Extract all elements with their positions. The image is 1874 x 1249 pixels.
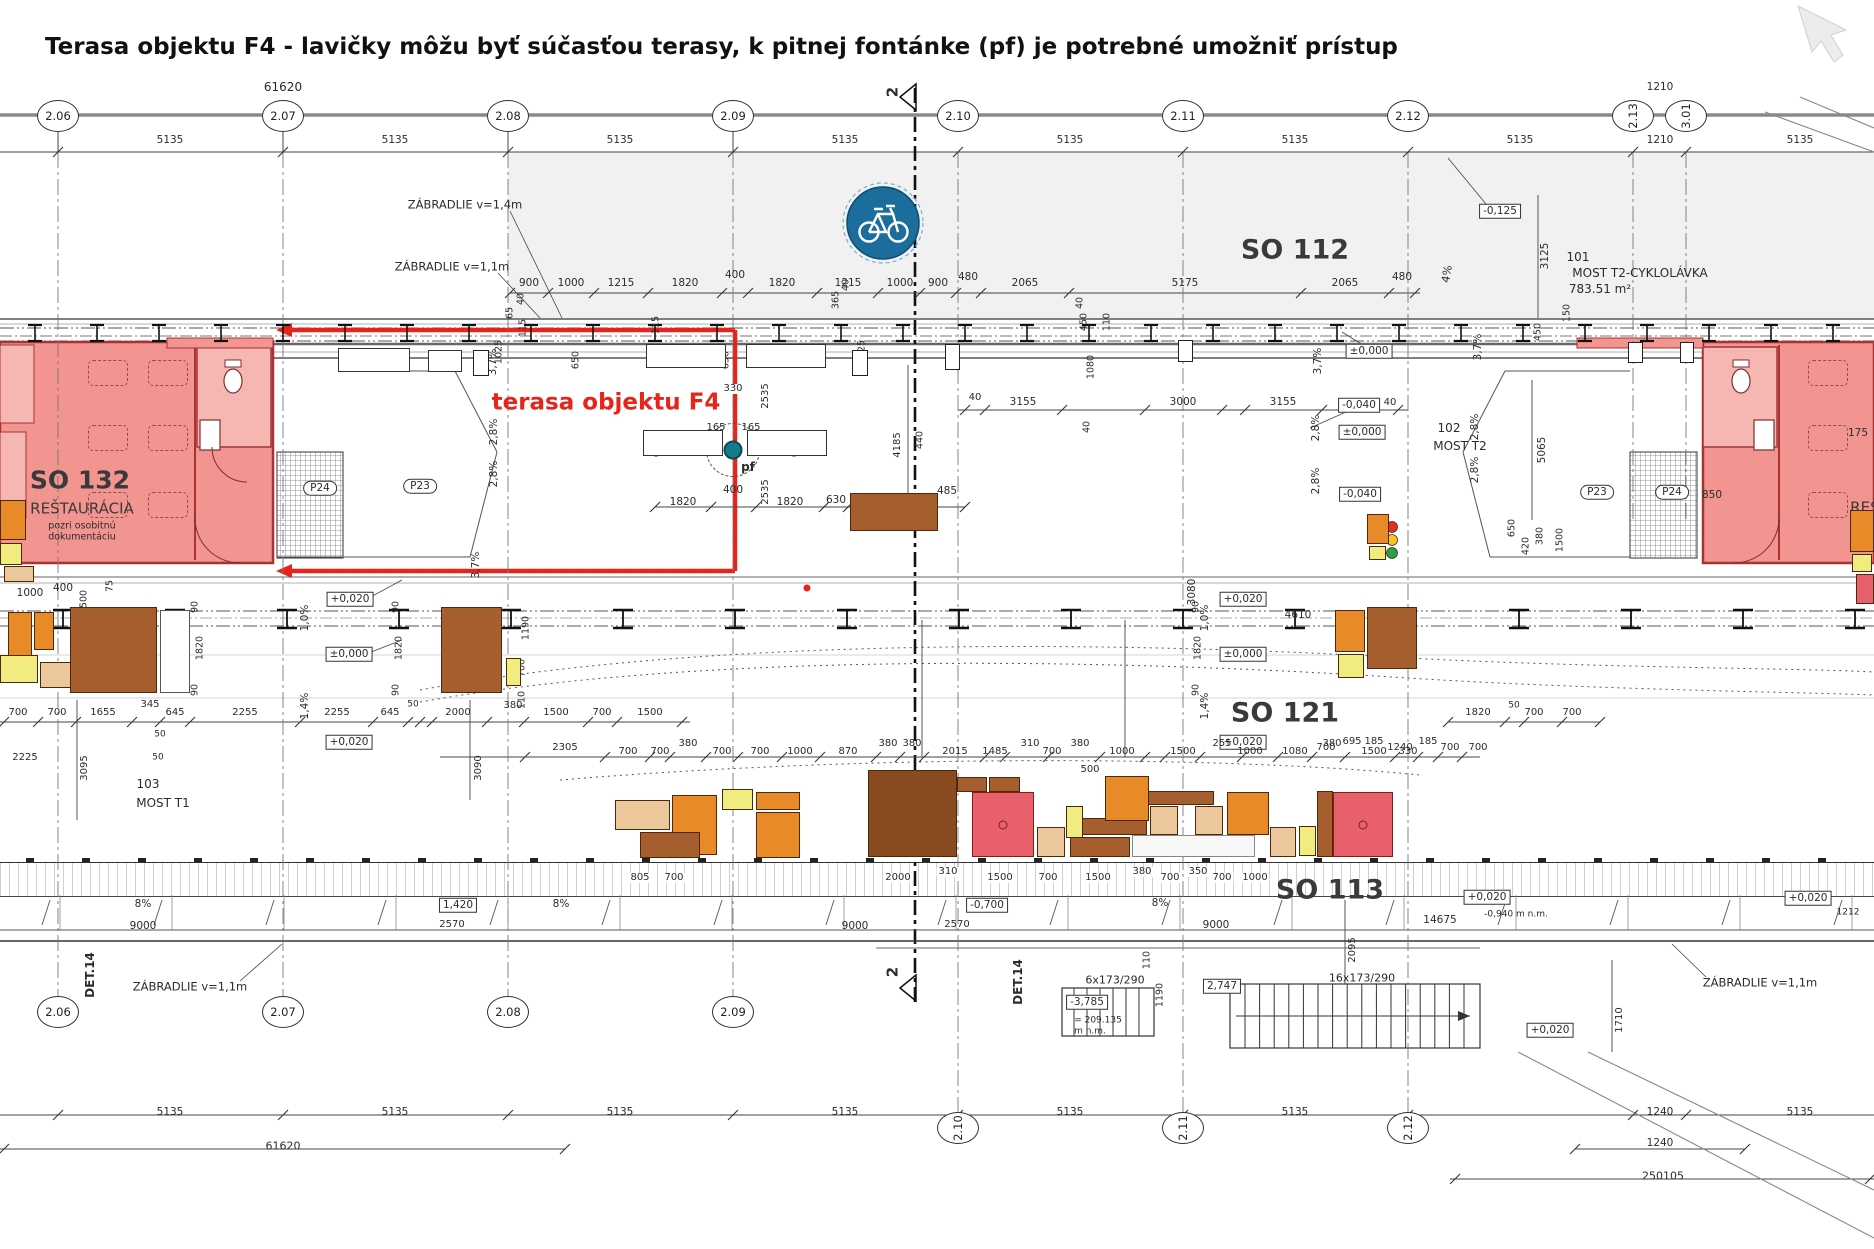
dim-label: 1210 [1647, 82, 1674, 93]
dim-label: 185 [1418, 737, 1437, 747]
dim-label: 40 [516, 293, 526, 305]
dim-label: 75 [105, 580, 115, 592]
grid-axis-label: 2.08 [495, 109, 521, 123]
dim-label: 1500 [1361, 747, 1386, 757]
dim-label: 700 [1562, 708, 1581, 718]
dim-label: 1710 [1615, 1007, 1625, 1032]
dim-label: 700 [8, 708, 27, 718]
dim-label: 5135 [832, 135, 859, 146]
grid-axis-bubble: 2.09 [712, 996, 754, 1028]
furniture-box [1850, 510, 1874, 552]
dim-label: 9000 [842, 921, 869, 932]
dim-label: 2305 [552, 743, 577, 753]
grid-axis-label: 2.09 [720, 1005, 746, 1019]
slope-arrow [1722, 900, 1730, 925]
grid-axis-label: 2.08 [495, 1005, 521, 1019]
dim-label: 400 [723, 485, 743, 496]
table-outline [1808, 360, 1848, 386]
grid-axis-bubble: 2.06 [37, 996, 79, 1028]
dim-label: 150 [1562, 304, 1572, 322]
dim-label: -0,940 m n.m. [1484, 911, 1548, 920]
grid-axis-label: 2.06 [45, 1005, 71, 1019]
dim-label: 3155 [1010, 397, 1037, 408]
slope-arrow [42, 900, 50, 925]
dim-label: 1820 [777, 497, 804, 508]
dim-label: 8% [135, 899, 152, 910]
dim-label: -0,040 [1338, 398, 1380, 413]
dim-label: 5135 [157, 1107, 184, 1118]
dim-label: 3,7% [1313, 348, 1324, 375]
grid-axis-label: 2.12 [1395, 109, 1421, 123]
dim-label: 1820 [394, 636, 404, 660]
dim-label: 380 [1535, 527, 1545, 545]
dim-label: 700 [712, 747, 731, 757]
furniture-box [441, 607, 502, 693]
dim-label: ZÁBRADLIE v=1,1m [1703, 977, 1818, 989]
dim-label: 650 [571, 351, 581, 369]
dim-label: 1000 [17, 588, 44, 599]
dim-label: 700 [750, 747, 769, 757]
furniture-box [1333, 792, 1393, 857]
slope-arrow [378, 900, 386, 925]
grid-axis-label: 2.11 [1176, 1115, 1190, 1141]
dim-label: 870 [838, 747, 857, 757]
grid-axis-bubble: 2.08 [487, 996, 529, 1028]
grid-axis-bubble: 2.11 [1162, 100, 1204, 132]
dim-label: 645 [380, 708, 399, 718]
dim-label: 440 [915, 431, 925, 449]
dim-label: 1000 [1240, 873, 1269, 883]
box-center-mark [1359, 820, 1368, 829]
furniture-box [852, 350, 868, 376]
dim-label: 61620 [264, 81, 302, 93]
dim-label: 40 [969, 393, 982, 403]
furniture-box [1227, 792, 1269, 835]
dim-label: 90 [1191, 601, 1201, 613]
dim-label: 5135 [832, 1107, 859, 1118]
dim-label: +0,020 [1464, 890, 1511, 905]
grid-axis-bubble: 2.13 [1612, 100, 1654, 132]
table-outline [1808, 425, 1848, 451]
dim-label: 40 [1075, 297, 1085, 309]
dim-label: 90 [190, 601, 200, 613]
lower-deck-rails [0, 577, 1874, 698]
dim-label: 2,8% [489, 461, 500, 488]
dim-label: 8% [553, 899, 570, 910]
table-outline [88, 360, 128, 386]
cad-plan-canvas: Terasa objektu F4 - lavičky môžu byť súč… [0, 0, 1874, 1249]
table-outline [88, 492, 128, 518]
slope-arrow [1386, 900, 1394, 925]
grid-axis-bubble: 2.12 [1387, 1112, 1429, 1144]
grid-axis-bubble: 2.07 [262, 996, 304, 1028]
dim-label: 5135 [382, 1107, 409, 1118]
grid-axis-label: 2.11 [1170, 109, 1196, 123]
dim-label: 1240 [1647, 1107, 1674, 1118]
dim-label: +0,020 [1220, 592, 1267, 607]
furniture-box [1178, 340, 1193, 362]
hatch-pad-left [277, 452, 343, 558]
furniture-box [1338, 654, 1364, 678]
dim-label: pozri osobitnú [48, 521, 115, 531]
dim-label: 1240 [1647, 1138, 1674, 1149]
furniture-box [957, 777, 987, 792]
furniture-box [1680, 342, 1694, 363]
dim-label: 2225 [12, 753, 37, 763]
dim-label: 1485 [982, 747, 1007, 757]
dim-label: SO 113 [1276, 877, 1384, 904]
dim-label: 1190 [1155, 983, 1165, 1007]
dim-label: 1,0% [300, 605, 311, 632]
dim-label: 5135 [607, 135, 634, 146]
dim-label: 700 [592, 708, 611, 718]
dim-label: 1500 [1555, 528, 1565, 552]
dim-label: ZÁBRADLIE v=1,1m [133, 981, 248, 993]
dim-label: 1820 [195, 636, 205, 660]
table-outline [148, 360, 188, 386]
dim-label: +0,020 [1785, 891, 1832, 906]
furniture-box [0, 655, 38, 683]
dim-label: -0,040 [1339, 487, 1381, 502]
furniture-box [722, 789, 753, 810]
furniture-box [1856, 574, 1874, 604]
dim-label: 255 [1212, 739, 1231, 749]
dim-label: 5135 [1057, 135, 1084, 146]
dim-label: 90 [391, 601, 401, 613]
grid-axis-bubble: 3.01 [1665, 100, 1707, 132]
dim-label: 700 [662, 873, 685, 883]
dim-label: 103 [137, 778, 160, 790]
dim-label: 250105 [1642, 1171, 1684, 1182]
dim-label: 645 [165, 708, 184, 718]
dim-label: 700 [1316, 743, 1335, 753]
dim-label: 3,7% [1473, 334, 1484, 361]
dim-label: 2,8% [1470, 414, 1481, 441]
dim-label: SO 132 [30, 468, 130, 493]
dim-label: MOST T2 [1433, 440, 1487, 452]
dim-label: 850 [1702, 490, 1722, 501]
furniture-box [4, 566, 34, 582]
table-outline [88, 425, 128, 451]
furniture-box [1070, 837, 1130, 857]
dim-label: P24 [1655, 485, 1689, 500]
page-title: Terasa objektu F4 - lavičky môžu byť súč… [45, 34, 1398, 60]
dim-label: 1500 [1083, 873, 1112, 883]
dim-label: 90 [190, 684, 200, 696]
dim-label: 480 [1392, 272, 1412, 283]
dim-label: 5135 [607, 1107, 634, 1118]
dim-label: MOST T1 [136, 797, 190, 809]
grid-axis-bubble: 2.06 [37, 100, 79, 132]
dim-label: 1655 [90, 708, 115, 718]
furniture-box [1037, 827, 1065, 857]
furniture-box [1367, 514, 1389, 544]
dim-label: -0,700 [966, 898, 1008, 913]
dim-label: 5135 [1282, 135, 1309, 146]
dim-label: 2 [886, 87, 901, 97]
dim-label: 450 [1533, 323, 1543, 341]
dim-label: 500 [1078, 765, 1101, 775]
dim-label: terasa objektu F4 [492, 392, 721, 415]
dim-label: 1,0% [1200, 605, 1211, 632]
stairs-large [1230, 984, 1480, 1048]
dim-label: 1190 [521, 616, 531, 640]
dim-label: 2000 [883, 873, 912, 883]
dim-label: 5175 [1172, 278, 1199, 289]
dim-label: 783.51 m² [1569, 283, 1631, 295]
furniture-box [989, 777, 1020, 792]
grid-axis-label: 2.09 [720, 109, 746, 123]
furniture-box [70, 607, 157, 693]
ramp-outlines [277, 371, 1630, 557]
dim-label: 50 [152, 754, 163, 763]
dim-label: 350 [1186, 867, 1209, 877]
dim-label: 1500 [543, 708, 568, 718]
dim-label: 1080 [1086, 355, 1096, 379]
dim-label: ±0,000 [1339, 425, 1386, 440]
dim-label: ±0,000 [1220, 647, 1267, 662]
dim-label: 40 [1384, 398, 1397, 408]
furniture-box [428, 350, 462, 372]
furniture-box [1150, 806, 1178, 835]
furniture-box [615, 800, 670, 830]
dim-label: MOST T2-CYKLOLÁVKA [1572, 267, 1707, 279]
furniture-box [1195, 806, 1223, 835]
dim-label: 1500 [1170, 747, 1195, 757]
dim-label: 14675 [1423, 915, 1456, 926]
furniture-box [1335, 610, 1365, 652]
dim-label: 700 [1158, 873, 1181, 883]
slope-crest-dotted-lower [420, 663, 1874, 702]
grid-axis-bubble: 2.10 [937, 100, 979, 132]
pf-fountain-icon [724, 441, 743, 460]
dim-label: 2,8% [489, 419, 500, 446]
dim-label: 380 [902, 739, 921, 749]
dim-label: 1,4% [1200, 693, 1211, 720]
dim-label: 1000 [887, 278, 914, 289]
dim-label: 50 [407, 701, 418, 710]
furniture-box [34, 612, 54, 650]
dim-label: 2065 [1012, 278, 1039, 289]
dim-label: 102 [1438, 422, 1461, 434]
furniture-box [1132, 835, 1255, 857]
dim-label: +0,020 [1527, 1023, 1574, 1038]
dim-label: 700 [1036, 873, 1059, 883]
dim-label: 5135 [1787, 135, 1814, 146]
dim-label: 3155 [1270, 397, 1297, 408]
dim-label: 9000 [130, 921, 157, 932]
dim-label: 1000 [1109, 747, 1134, 757]
furniture-box [945, 344, 960, 370]
furniture-box [40, 662, 72, 688]
furniture-box [640, 832, 700, 858]
dim-label: -0,125 [1479, 204, 1521, 219]
grid-axis-label: 2.12 [1401, 1115, 1415, 1141]
dim-label: ±0,000 [326, 647, 373, 662]
dim-label: 345 [140, 700, 159, 710]
slope-arrow [714, 900, 722, 925]
dim-label: +0,020 [327, 592, 374, 607]
dim-label: 900 [928, 278, 948, 289]
dim-label: 1215 [608, 278, 635, 289]
furniture-box [1628, 342, 1643, 363]
grid-axis-label: 2.13 [1626, 103, 1640, 129]
dim-label: 485 [937, 486, 957, 497]
dim-label: 700 [1440, 743, 1459, 753]
dim-label: 2 [886, 967, 901, 977]
dim-label: 310 [1020, 739, 1039, 749]
dim-label: P23 [1580, 485, 1614, 500]
furniture-box [160, 610, 190, 693]
dim-label: = 209.135 [1074, 1017, 1122, 1026]
grid-axis-label: 3.01 [1679, 103, 1693, 129]
dim-label: 1820 [670, 497, 697, 508]
dim-label: 900 [519, 278, 539, 289]
dim-label: ±0,000 [1346, 344, 1393, 359]
dim-label: 110 [1102, 313, 1112, 331]
furniture-box [0, 543, 22, 565]
dim-label: 695 [1342, 737, 1361, 747]
dim-label: 101 [1567, 251, 1590, 263]
dim-label: 2,8% [1311, 415, 1322, 442]
dim-label: 2,8% [1311, 468, 1322, 495]
furniture-box [972, 792, 1034, 857]
red-marker-dot [804, 585, 811, 592]
dim-label: 5135 [382, 135, 409, 146]
grid-axis-bubble: 2.12 [1387, 100, 1429, 132]
dim-label: 3000 [1170, 397, 1197, 408]
dim-label: 380 [1070, 739, 1089, 749]
linework-layer [0, 0, 1874, 1249]
furniture-box [1367, 607, 1417, 669]
dim-label: 2,747 [1203, 979, 1241, 994]
furniture-box [868, 770, 957, 857]
furniture-box [0, 500, 26, 540]
slope-arrow [490, 900, 498, 925]
dim-label: 2570 [439, 920, 464, 930]
dim-label: 115 [651, 316, 661, 334]
dim-label: 175 [1848, 428, 1868, 439]
dim-label: P24 [303, 481, 337, 496]
dim-label: 700 [618, 747, 637, 757]
table-outline [148, 425, 188, 451]
dim-label: 1500 [637, 708, 662, 718]
dim-label: 115 [518, 319, 528, 337]
dim-label: 4185 [893, 432, 903, 457]
dim-label: 5135 [1507, 135, 1534, 146]
dim-label: 2535 [761, 479, 771, 504]
dim-label: 1820 [672, 278, 699, 289]
dim-label: 4610 [1285, 610, 1312, 621]
grid-axis-label: 2.07 [270, 1005, 296, 1019]
dim-label: 65 [505, 307, 515, 319]
dim-label: 1240 [1387, 743, 1412, 753]
dim-label: 40 [1082, 421, 1092, 433]
furniture-box [473, 350, 489, 376]
dim-label: 1080 [1282, 747, 1307, 757]
furniture-box [1148, 791, 1214, 805]
dim-label: dokumentáciu [48, 532, 116, 542]
furniture-box [1066, 806, 1083, 838]
grid-axis-bubble: 2.10 [937, 1112, 979, 1144]
slope-crest-dotted-upper [420, 646, 1874, 690]
dim-label: 6x173/290 [1085, 975, 1144, 986]
dim-label: 1820 [1465, 708, 1490, 718]
dim-label: 805 [628, 873, 651, 883]
dim-label: 5135 [1057, 1107, 1084, 1118]
dim-label: 480 [958, 272, 978, 283]
dim-label: 450 [1079, 313, 1089, 331]
restaurant-left [0, 338, 273, 563]
dim-label: 700 [1210, 873, 1233, 883]
dim-label: 185 [1364, 737, 1383, 747]
furniture-box [1369, 546, 1386, 560]
dim-label: DET.14 [1012, 959, 1024, 1005]
dim-label: pf [741, 461, 755, 473]
dim-label: 5135 [1282, 1107, 1309, 1118]
hatch-pad-right [1630, 452, 1697, 558]
grid-axis-bubble: 2.11 [1162, 1112, 1204, 1144]
table-outline [1808, 492, 1848, 518]
dim-label: 380 [678, 739, 697, 749]
dim-label: 650 [1507, 519, 1517, 537]
furniture-box [1270, 827, 1296, 857]
dim-label: 700 [1042, 747, 1061, 757]
grid-axis-bubble: 2.09 [712, 100, 754, 132]
dim-label: 700 [47, 708, 66, 718]
dim-label: 700 [650, 747, 669, 757]
dim-label: SO 121 [1231, 700, 1339, 727]
dim-label: 8% [1152, 898, 1169, 909]
furniture-box [338, 348, 410, 372]
dim-label: -3,785 [1066, 995, 1108, 1010]
dim-label: 700 [1524, 708, 1543, 718]
dim-label: m n.m. [1074, 1028, 1106, 1037]
dim-label: 1820 [1193, 636, 1203, 660]
dim-label: 5135 [157, 135, 184, 146]
box-center-mark [999, 820, 1008, 829]
dim-label: 1210 [1647, 135, 1674, 146]
dim-label: 2015 [942, 747, 967, 757]
dim-label: 1025 [494, 340, 504, 364]
grid-axis-label: 2.07 [270, 109, 296, 123]
dim-label: 700 [1468, 743, 1487, 753]
furniture-box [747, 430, 827, 456]
furniture-box [646, 344, 726, 368]
dim-label: 2570 [944, 920, 969, 930]
dim-label: 2,8% [1470, 457, 1481, 484]
dim-label: ZÁBRADLIE v=1,1m [395, 261, 510, 273]
dim-label: 3090 [474, 755, 484, 780]
furniture-box [1299, 826, 1316, 856]
dim-label: 380 [1130, 867, 1153, 877]
dim-label: 2095 [1348, 937, 1358, 962]
dim-label: 5135 [1787, 1107, 1814, 1118]
slope-arrow [602, 900, 610, 925]
dim-label: 5065 [1537, 437, 1548, 464]
dim-label: 1,4% [300, 693, 311, 720]
table-outline [148, 492, 188, 518]
dim-label: 50 [154, 731, 165, 740]
dim-label: 9000 [1203, 920, 1230, 931]
dim-label: 380 [878, 739, 897, 749]
dim-label: SO 112 [1241, 237, 1349, 264]
bicycle-sign-icon [843, 183, 923, 263]
dim-label: 420 [1521, 537, 1531, 555]
slope-arrow [1610, 900, 1618, 925]
slope-arrow [266, 900, 274, 925]
dim-label: 2255 [232, 708, 257, 718]
